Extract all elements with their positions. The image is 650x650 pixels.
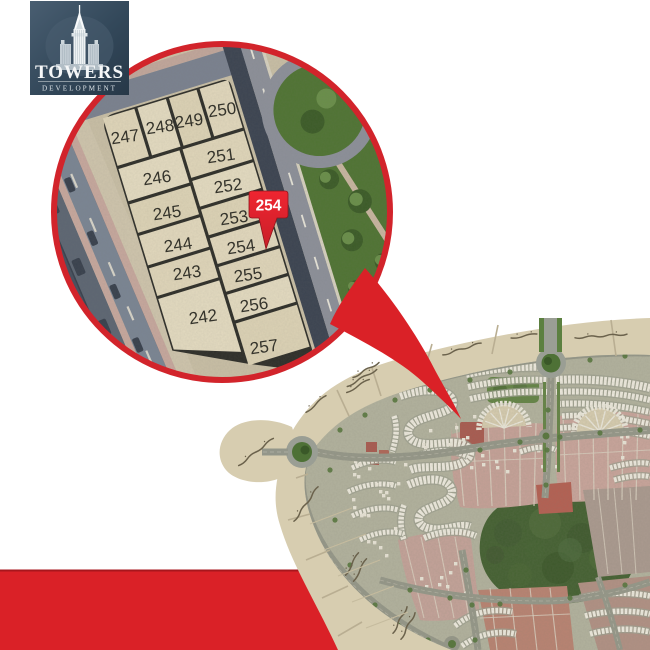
svg-text:245: 245	[152, 202, 183, 225]
svg-text:247: 247	[110, 126, 141, 149]
svg-text:257: 257	[249, 336, 280, 359]
svg-text:256: 256	[239, 294, 270, 317]
svg-text:255: 255	[233, 264, 264, 287]
svg-text:244: 244	[163, 234, 194, 257]
svg-text:254: 254	[226, 236, 257, 259]
svg-text:248: 248	[145, 116, 176, 139]
svg-text:253: 253	[219, 207, 250, 230]
svg-text:242: 242	[188, 306, 219, 329]
svg-text:250: 250	[207, 99, 238, 122]
svg-text:251: 251	[206, 145, 237, 168]
svg-text:249: 249	[174, 110, 205, 133]
svg-text:254: 254	[256, 198, 282, 215]
svg-text:DEVELOPMENT: DEVELOPMENT	[42, 85, 117, 93]
svg-text:TOWERS: TOWERS	[35, 62, 124, 83]
svg-text:246: 246	[142, 167, 173, 190]
svg-text:252: 252	[213, 175, 244, 198]
svg-text:243: 243	[172, 262, 203, 285]
